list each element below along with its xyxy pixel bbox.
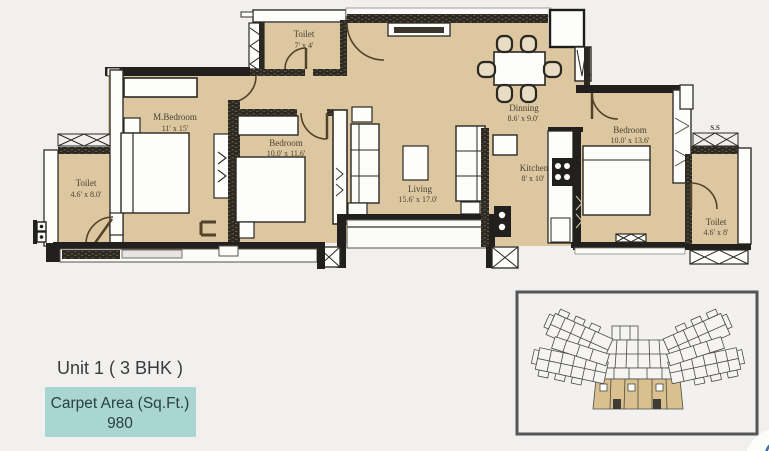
svg-text:8' x 10': 8' x 10' bbox=[522, 174, 545, 183]
svg-text:Carpet Area (Sq.Ft.): Carpet Area (Sq.Ft.) bbox=[51, 395, 190, 412]
svg-text:980: 980 bbox=[107, 415, 133, 432]
svg-text:11' x 15': 11' x 15' bbox=[162, 124, 189, 133]
svg-text:7' x 4': 7' x 4' bbox=[295, 41, 314, 50]
svg-text:4.6' x 8': 4.6' x 8' bbox=[704, 228, 729, 237]
svg-text:M.Bedroom: M.Bedroom bbox=[153, 112, 197, 122]
svg-text:S.S: S.S bbox=[710, 124, 720, 132]
svg-text:Dinning: Dinning bbox=[509, 103, 539, 113]
svg-text:Bedroom: Bedroom bbox=[269, 138, 303, 148]
svg-text:Kitchen: Kitchen bbox=[520, 163, 549, 173]
svg-text:Toilet: Toilet bbox=[76, 178, 97, 188]
svg-text:Toilet: Toilet bbox=[706, 217, 727, 227]
svg-text:Unit 1 ( 3 BHK ): Unit 1 ( 3 BHK ) bbox=[57, 358, 183, 378]
svg-text:10.0' x 13.6': 10.0' x 13.6' bbox=[611, 136, 650, 145]
svg-text:15.6' x 17.0': 15.6' x 17.0' bbox=[399, 195, 438, 204]
svg-text:4.6' x 8.0': 4.6' x 8.0' bbox=[71, 190, 102, 199]
svg-text:8.6' x 9.0': 8.6' x 9.0' bbox=[508, 114, 539, 123]
svg-text:Bedroom: Bedroom bbox=[613, 125, 647, 135]
svg-text:Toilet: Toilet bbox=[294, 29, 315, 39]
svg-text:Living: Living bbox=[408, 184, 432, 194]
